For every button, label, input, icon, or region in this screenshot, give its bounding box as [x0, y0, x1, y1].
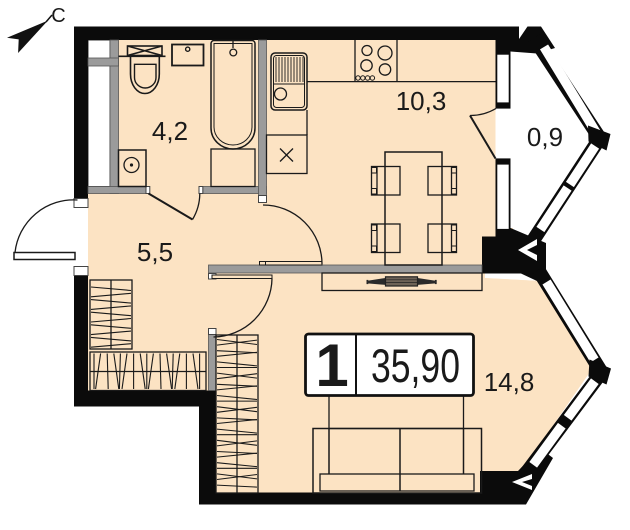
- svg-text:5,5: 5,5: [137, 237, 173, 267]
- svg-text:10,3: 10,3: [396, 86, 447, 116]
- svg-text:35,90: 35,90: [371, 339, 460, 392]
- svg-text:1: 1: [315, 332, 348, 399]
- svg-text:0,9: 0,9: [527, 122, 563, 152]
- svg-text:14,8: 14,8: [484, 367, 535, 397]
- svg-text:С: С: [51, 5, 65, 27]
- svg-text:4,2: 4,2: [152, 116, 188, 146]
